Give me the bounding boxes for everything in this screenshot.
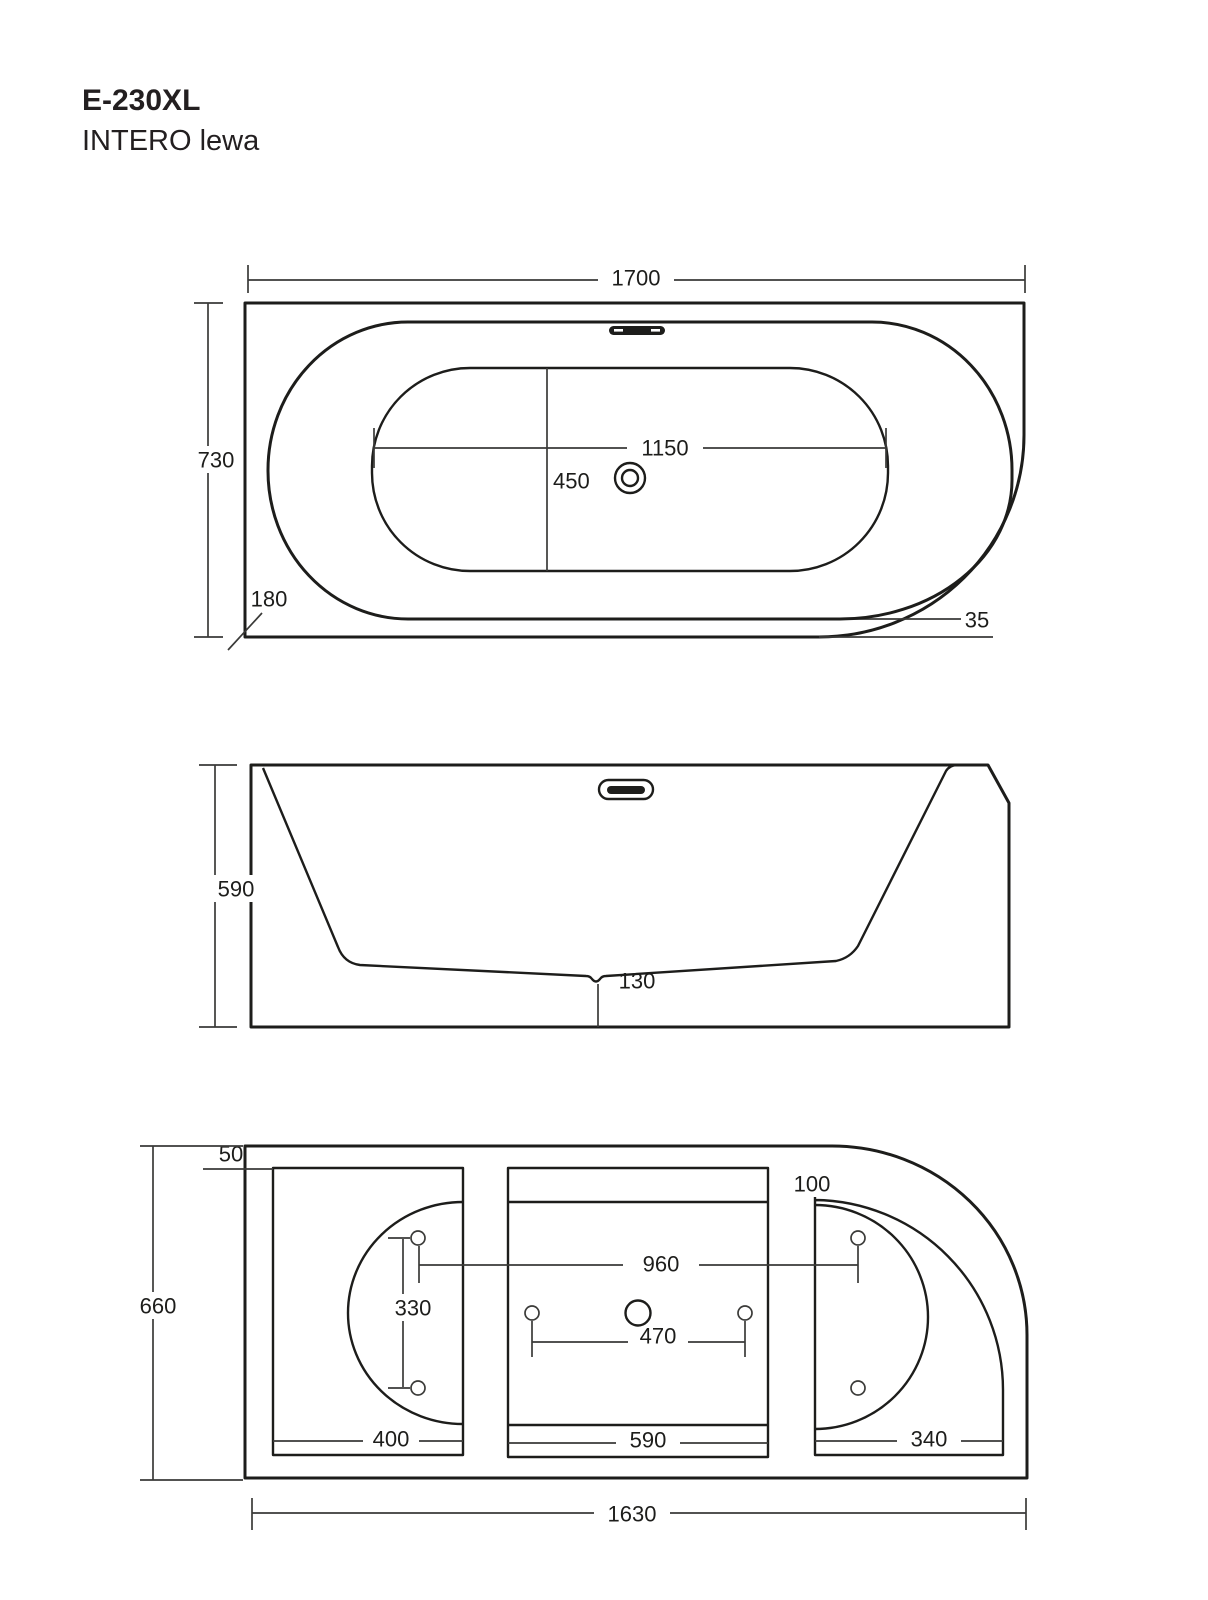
drain-hole-icon — [626, 1301, 651, 1326]
dim-right-panel-width: 340 — [815, 1427, 1003, 1452]
overflow-icon — [599, 780, 653, 799]
dim-base-length-label: 1630 — [608, 1502, 657, 1527]
dim-corner-radius-label: 180 — [251, 587, 288, 612]
dim-center-panel-width: 590 — [508, 1428, 768, 1453]
drawing-sheet: E-230XL INTERO lewa 1150 450 — [0, 0, 1208, 1600]
dim-rim-offset-label: 35 — [965, 608, 989, 633]
dim-stud-span-length: 960 — [388, 1238, 858, 1283]
model-number: E-230XL — [82, 84, 200, 117]
dim-inner-width-label: 450 — [553, 469, 590, 494]
drain-icon — [615, 463, 645, 493]
dim-inner-length-label: 1150 — [641, 436, 688, 461]
center-panel — [508, 1168, 768, 1457]
dim-corner-frame-offset: 100 — [788, 1170, 836, 1197]
dim-overall-length: 1700 — [248, 264, 1025, 293]
right-basin-arc — [815, 1205, 928, 1429]
dim-corner-frame-offset-label: 100 — [794, 1172, 831, 1197]
dim-overall-width: 730 — [192, 303, 240, 637]
dim-right-panel-width-label: 340 — [911, 1427, 948, 1452]
right-panel — [815, 1170, 1003, 1455]
dim-left-panel-width-label: 400 — [373, 1427, 410, 1452]
dim-base-width-label: 660 — [140, 1294, 177, 1319]
dim-stud-span-length-label: 960 — [643, 1252, 680, 1277]
top-view: 1150 450 1700 730 — [192, 264, 1025, 650]
mounting-hole-icon — [738, 1306, 752, 1320]
dim-base-width: 660 — [132, 1146, 243, 1480]
mounting-hole-icon — [411, 1381, 425, 1395]
dim-bottom-clearance-label: 130 — [619, 969, 656, 994]
mounting-hole-icon — [851, 1231, 865, 1245]
tub-rim — [268, 322, 1012, 619]
dim-left-panel-width: 400 — [273, 1427, 463, 1452]
dim-overall-width-label: 730 — [198, 448, 235, 473]
mounting-hole-icon — [525, 1306, 539, 1320]
dim-center-stud-span-label: 470 — [640, 1324, 677, 1349]
front-view: 590 130 — [199, 765, 1009, 1027]
dim-stud-span-width-label: 330 — [395, 1296, 432, 1321]
title-block: E-230XL INTERO lewa — [82, 84, 260, 157]
basin-profile-line — [263, 765, 957, 982]
dim-bottom-clearance: 130 — [598, 969, 655, 1028]
dim-height-label: 590 — [218, 877, 255, 902]
overflow-icon — [609, 326, 665, 335]
technical-drawing-svg: E-230XL INTERO lewa 1150 450 — [0, 0, 1208, 1600]
dim-center-panel-width-label: 590 — [630, 1428, 667, 1453]
mounting-hole-icon — [851, 1381, 865, 1395]
bottom-view: 50 100 660 960 330 — [132, 1142, 1027, 1531]
model-variant: INTERO lewa — [82, 125, 260, 157]
dim-stud-span-width: 330 — [387, 1239, 440, 1388]
mounting-hole-icon — [411, 1231, 425, 1245]
dim-base-length: 1630 — [252, 1498, 1026, 1530]
dim-corner-radius: 180 — [228, 587, 287, 651]
dim-overall-length-label: 1700 — [612, 266, 661, 291]
